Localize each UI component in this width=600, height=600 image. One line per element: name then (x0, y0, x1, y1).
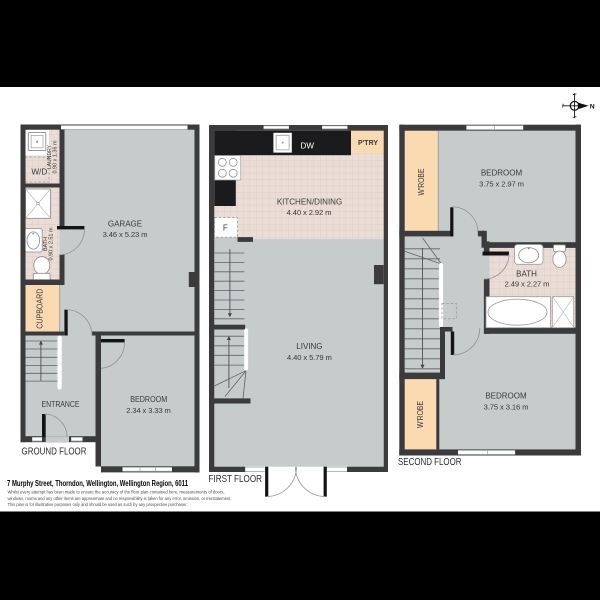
svg-text:BEDROOM: BEDROOM (130, 395, 167, 404)
svg-text:BEDROOM: BEDROOM (481, 169, 523, 178)
svg-text:GARAGE: GARAGE (108, 220, 142, 229)
svg-text:7 Murphy Street, Thorndon, Wel: 7 Murphy Street, Thorndon, Wellington, W… (7, 479, 188, 488)
svg-text:P'TRY: P'TRY (358, 138, 378, 147)
svg-text:Whilst every attempt has been: Whilst every attempt has been made to en… (8, 490, 225, 496)
svg-text:DW: DW (301, 141, 315, 150)
svg-text:0.90 x 2.51 m: 0.90 x 2.51 m (48, 227, 54, 260)
svg-text:3.75 x 2.97 m: 3.75 x 2.97 m (479, 179, 524, 188)
svg-text:windows, rooms and any other i: windows, rooms and any other items are a… (8, 496, 232, 502)
svg-text:ENTRANCE: ENTRANCE (42, 399, 80, 409)
svg-text:KITCHEN/DINING: KITCHEN/DINING (277, 197, 342, 206)
svg-text:N: N (590, 104, 595, 111)
svg-text:W/D: W/D (31, 167, 47, 176)
svg-text:4.40 x 5.79 m: 4.40 x 5.79 m (287, 353, 332, 362)
svg-text:0.90 x 1.36 m: 0.90 x 1.36 m (52, 140, 58, 173)
svg-text:LIVING: LIVING (296, 342, 322, 351)
svg-text:FIRST FLOOR: FIRST FLOOR (209, 474, 263, 485)
svg-text:BATH: BATH (516, 269, 537, 278)
svg-text:W'ROBE: W'ROBE (415, 401, 425, 428)
svg-text:CUPBOARD: CUPBOARD (34, 289, 44, 329)
svg-text:F: F (223, 223, 228, 232)
svg-text:3.75 x 3.16 m: 3.75 x 3.16 m (484, 402, 529, 411)
svg-text:2.49 x 2.27 m: 2.49 x 2.27 m (505, 279, 550, 288)
svg-text:SECOND FLOOR: SECOND FLOOR (398, 457, 462, 468)
svg-text:W'ROBE: W'ROBE (416, 168, 426, 195)
svg-text:This plan is for illustrative: This plan is for illustrative purposes o… (8, 502, 188, 508)
svg-text:3.46 x 5.23 m: 3.46 x 5.23 m (103, 230, 148, 239)
svg-text:2.34 x 3.33 m: 2.34 x 3.33 m (126, 406, 171, 415)
svg-text:BEDROOM: BEDROOM (485, 392, 527, 401)
svg-text:GROUND FLOOR: GROUND FLOOR (22, 447, 87, 458)
svg-text:4.40 x 2.92 m: 4.40 x 2.92 m (287, 208, 332, 217)
